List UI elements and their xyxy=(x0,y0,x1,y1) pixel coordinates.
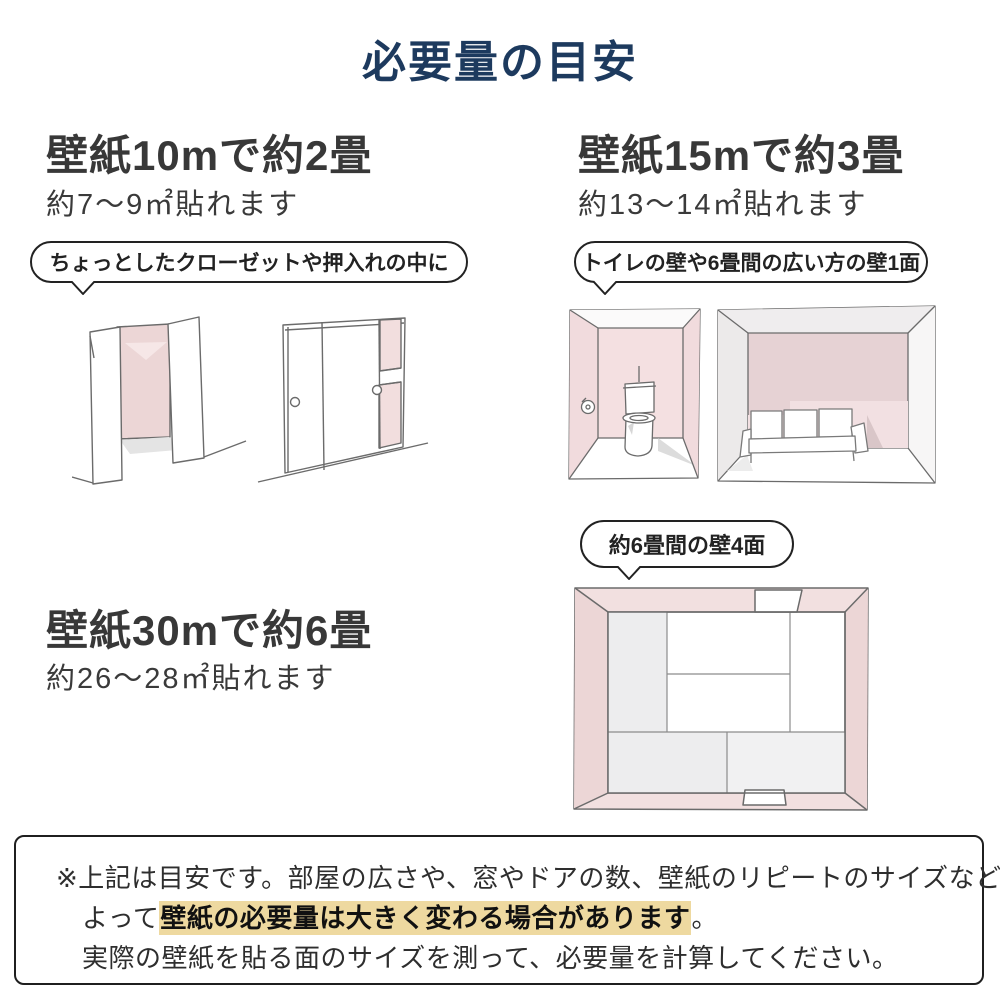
notice-line2-suffix: 。 xyxy=(691,903,718,933)
notice-line-2: よって壁紙の必要量は大きく変わる場合があります。 xyxy=(82,898,962,938)
heading-10m: 壁紙10mで約2畳 xyxy=(46,122,372,183)
open-closet-illustration xyxy=(72,300,247,495)
bubble-closet: ちょっとしたクローゼットや押入れの中に xyxy=(30,241,468,283)
bubble-closet-tail xyxy=(70,281,96,296)
bubble-toilet-tail xyxy=(592,281,618,296)
heading-15m: 壁紙15mで約3畳 xyxy=(578,122,904,183)
page-title: 必要量の目安 xyxy=(0,26,1000,90)
notice-line2-prefix: よって xyxy=(82,903,159,933)
notice-line-3: 実際の壁紙を貼る面のサイズを測って、必要量を計算してください。 xyxy=(82,938,962,978)
sub-30m: 約26〜28㎡貼れます xyxy=(46,655,336,697)
notice-line-1: ※上記は目安です。部屋の広さや、窓やドアの数、壁紙のリピートのサイズなどに xyxy=(56,858,962,898)
toilet-room-illustration xyxy=(562,298,704,486)
sliding-closet-illustration xyxy=(252,303,430,488)
tatami-room-illustration xyxy=(572,584,872,814)
sub-15m: 約13〜14㎡貼れます xyxy=(578,181,868,223)
bubble-toilet-wall: トイレの壁や6畳間の広い方の壁1面 xyxy=(574,241,928,283)
notice-box: ※上記は目安です。部屋の広さや、窓やドアの数、壁紙のリピートのサイズなどに よっ… xyxy=(14,835,984,985)
wallpaper-quantity-guide: 必要量の目安 壁紙10mで約2畳 約7〜9㎡貼れます ちょっとしたクローゼットや… xyxy=(0,0,1000,1000)
heading-30m: 壁紙30mで約6畳 xyxy=(46,597,372,658)
notice-highlight: 壁紙の必要量は大きく変わる場合があります xyxy=(159,901,691,935)
bubble-four-walls: 約6畳間の壁4面 xyxy=(580,520,794,568)
sofa-room-illustration xyxy=(717,303,938,485)
sub-10m: 約7〜9㎡貼れます xyxy=(46,181,299,223)
bubble-four-walls-tail xyxy=(616,566,642,581)
